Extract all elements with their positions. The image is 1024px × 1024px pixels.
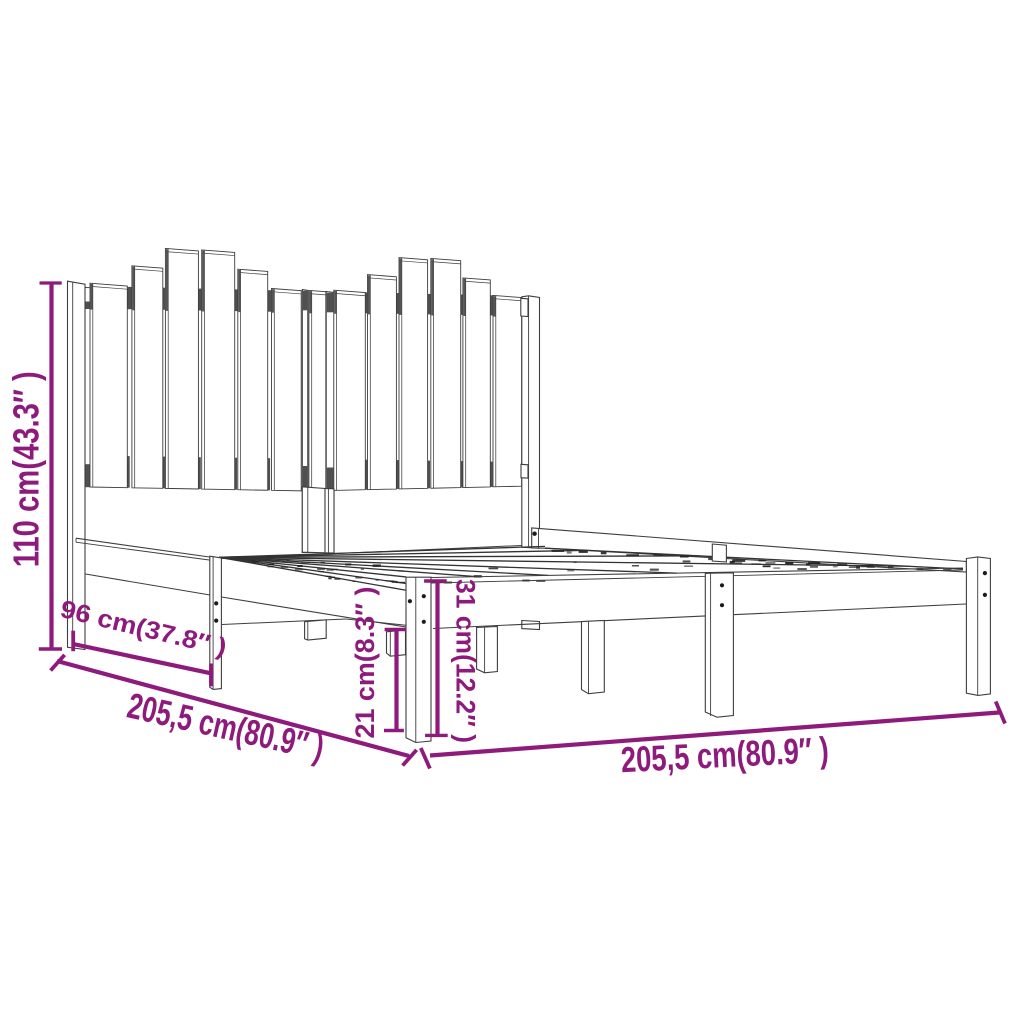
svg-text:110 cm(43.3″ ): 110 cm(43.3″ ): [6, 371, 47, 567]
svg-text:21 cm(8.3″ ): 21 cm(8.3″ ): [349, 587, 380, 739]
svg-text:31 cm(12.2″ ): 31 cm(12.2″ ): [450, 579, 480, 743]
